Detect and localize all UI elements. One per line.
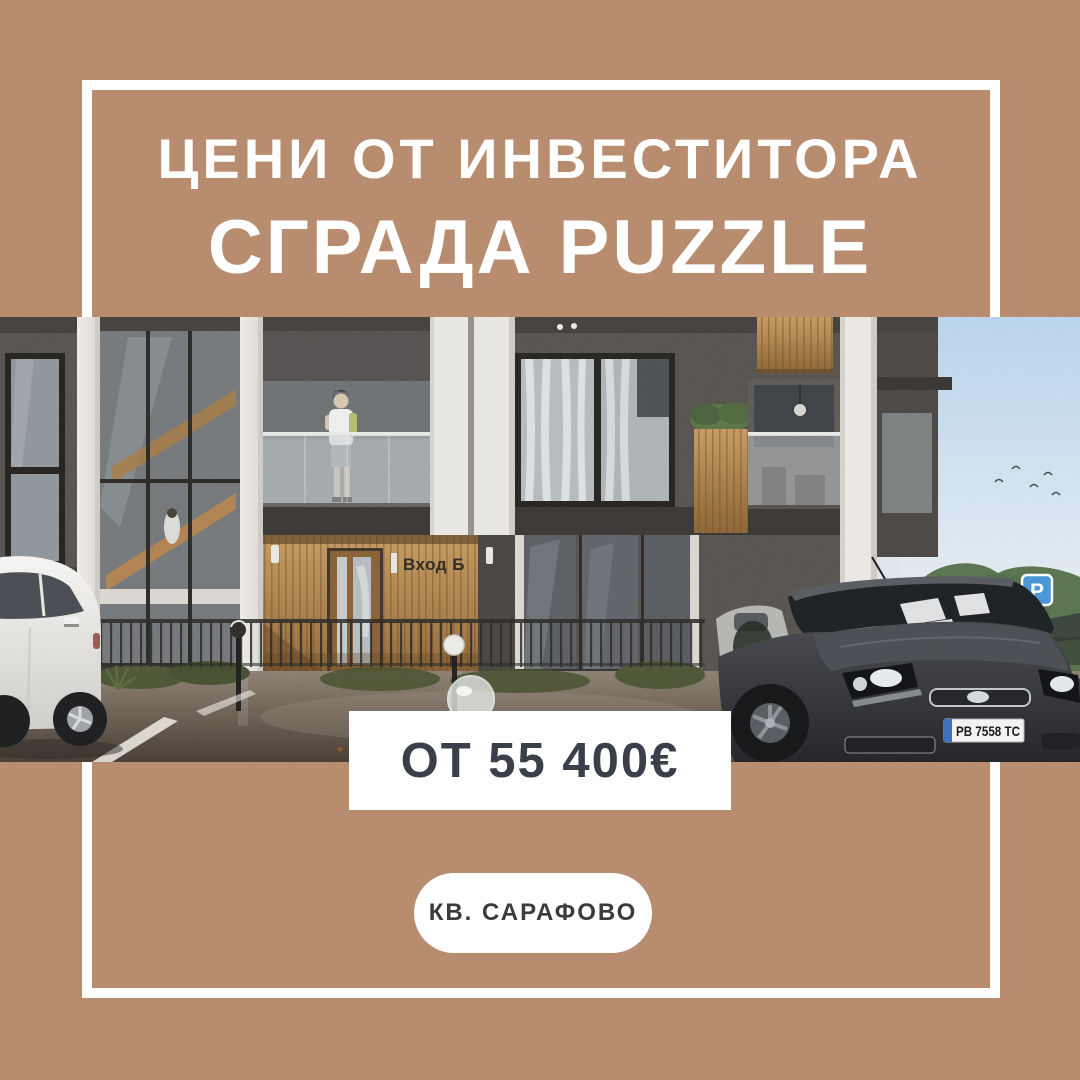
- title-line-2: СГРАДА PUZZLE: [0, 206, 1080, 290]
- price-label: ОТ 55 400€: [401, 733, 680, 789]
- location-pill: КВ. САРАФОВО: [414, 873, 652, 953]
- title-line-1: ЦЕНИ ОТ ИНВЕСТИТОРА: [0, 128, 1080, 190]
- price-box: ОТ 55 400€: [349, 711, 731, 810]
- location-label: КВ. САРАФОВО: [429, 899, 638, 927]
- building-photo: P: [0, 317, 1080, 762]
- grain-overlay: [0, 317, 1080, 762]
- title-block: ЦЕНИ ОТ ИНВЕСТИТОРА СГРАДА PUZZLE: [0, 128, 1080, 289]
- building-render-illustration: P: [0, 317, 1080, 762]
- poster-canvas: { "poster": { "colors": { "background": …: [0, 0, 1080, 1080]
